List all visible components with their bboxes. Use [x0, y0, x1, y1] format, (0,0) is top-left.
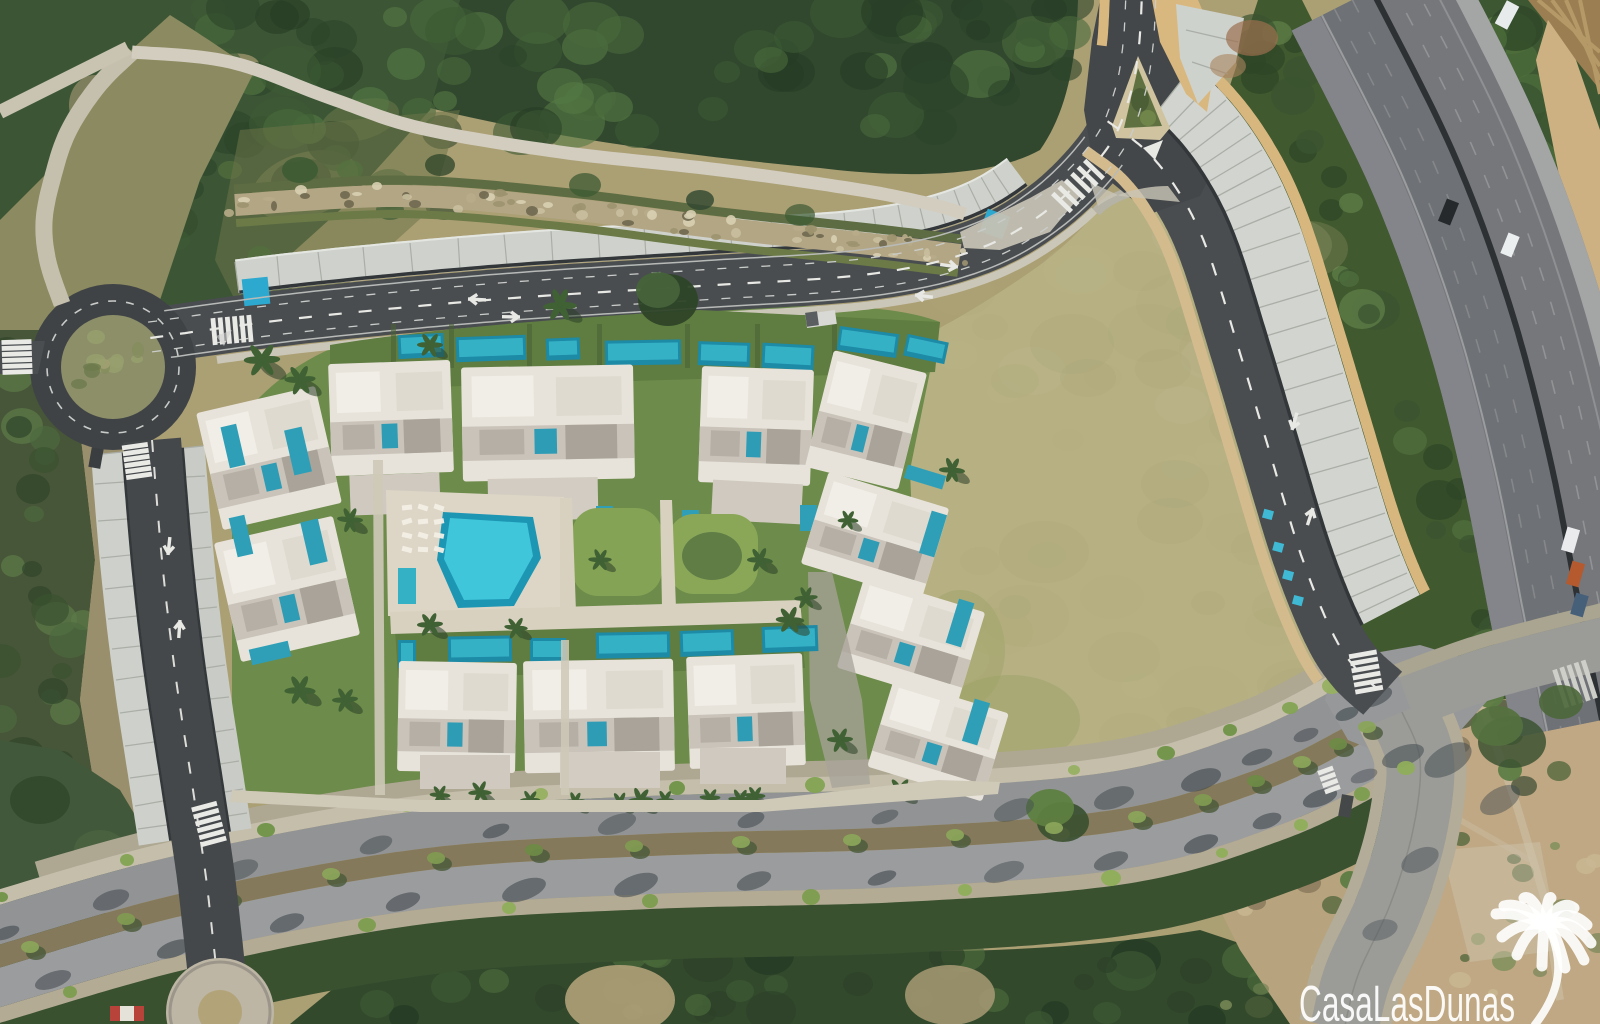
svg-text:CasaLasDunas: CasaLasDunas: [1299, 975, 1515, 1024]
